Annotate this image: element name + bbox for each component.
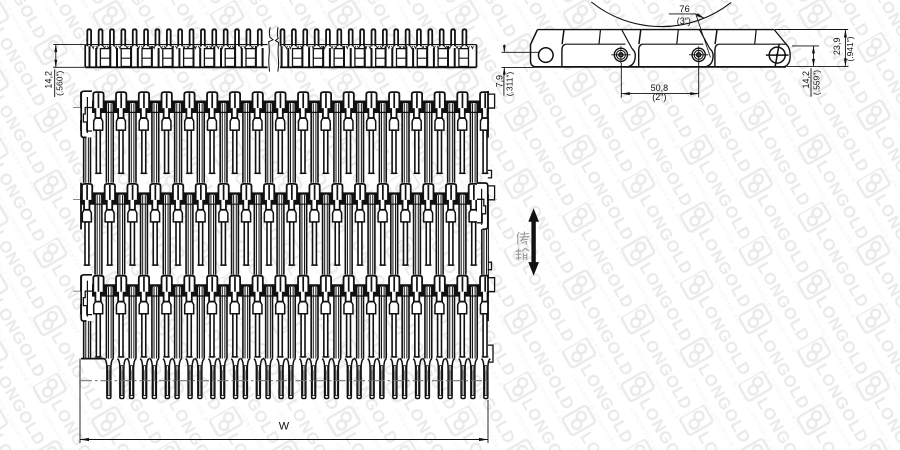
- svg-text:(.941″): (.941″): [845, 36, 855, 61]
- svg-text:23,9: 23,9: [832, 38, 842, 56]
- svg-text:(2″): (2″): [652, 92, 666, 102]
- svg-text:(.311″): (.311″): [505, 72, 515, 97]
- svg-text:(.559″): (.559″): [812, 70, 822, 95]
- svg-text:7,9: 7,9: [494, 75, 504, 88]
- svg-text:14,2: 14,2: [44, 71, 54, 89]
- svg-text:W: W: [279, 421, 290, 433]
- svg-text:(.560″): (.560″): [55, 71, 65, 96]
- svg-text:14,2: 14,2: [801, 71, 811, 89]
- svg-text:(3″): (3″): [677, 16, 691, 26]
- svg-text:76: 76: [679, 4, 690, 15]
